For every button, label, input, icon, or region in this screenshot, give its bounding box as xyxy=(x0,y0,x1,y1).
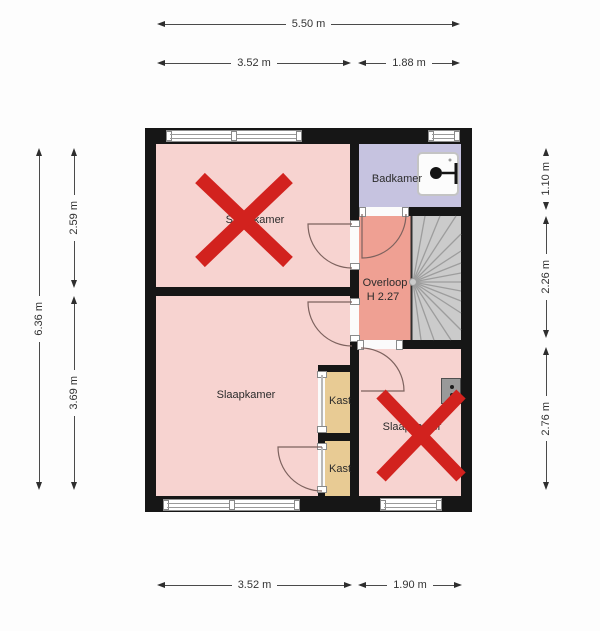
arrow-up-icon xyxy=(543,347,549,355)
dim-line xyxy=(366,585,387,586)
shower-fixtures xyxy=(430,159,456,185)
dim-label: 2.26 m xyxy=(540,254,552,300)
dim-top-total: 5.50 m xyxy=(157,18,460,30)
dim-left-upper: 2.59 m xyxy=(68,148,80,288)
dim-line xyxy=(366,63,386,64)
dim-line xyxy=(546,355,547,396)
arrow-up-icon xyxy=(71,296,77,304)
arrow-down-icon xyxy=(543,482,549,490)
dim-left-lower: 3.69 m xyxy=(68,296,80,490)
arrow-up-icon xyxy=(36,148,42,156)
dim-right-middle: 2.26 m xyxy=(540,216,552,338)
arrow-right-icon xyxy=(344,582,352,588)
plan-vector-overlay xyxy=(145,128,472,512)
arrow-right-icon xyxy=(452,21,460,27)
arrow-left-icon xyxy=(358,582,366,588)
dim-line xyxy=(432,63,452,64)
door-arc-closet-lower xyxy=(278,447,322,491)
door-arc-bedroom-bottom-right xyxy=(361,348,404,391)
arrow-down-icon xyxy=(36,482,42,490)
door-arc-bedroom-top-left xyxy=(308,224,352,268)
dim-line xyxy=(546,300,547,330)
stairs-treads xyxy=(413,216,461,340)
arrow-left-icon xyxy=(358,60,366,66)
dim-top-left: 3.52 m xyxy=(157,57,351,69)
dim-line xyxy=(74,304,75,370)
dim-right-lower: 2.76 m xyxy=(540,347,552,490)
dim-line xyxy=(165,24,286,25)
dim-line xyxy=(433,585,454,586)
dim-label: 1.90 m xyxy=(387,579,433,591)
dim-line xyxy=(39,156,40,296)
dim-line xyxy=(74,241,75,280)
arrow-left-icon xyxy=(157,60,165,66)
dim-label: 2.76 m xyxy=(540,396,552,442)
floor-plan: Slaapkamer Badkamer Overloop H 2.27 Slaa… xyxy=(145,128,472,512)
shower-head-dot xyxy=(449,159,452,162)
dim-line xyxy=(331,24,452,25)
cross-mark-bedroom-bottom-right xyxy=(381,394,461,477)
dim-line xyxy=(165,585,232,586)
arrow-up-icon xyxy=(543,148,549,156)
dim-line xyxy=(277,585,344,586)
arrow-right-icon xyxy=(454,582,462,588)
dim-label: 2.59 m xyxy=(68,195,80,241)
dim-label: 3.69 m xyxy=(68,370,80,416)
dim-line xyxy=(546,441,547,482)
dim-label: 1.88 m xyxy=(386,57,432,69)
floorplan-page: 5.50 m 3.52 m 1.88 m 3.52 m 1.90 m 6.36 … xyxy=(0,0,600,631)
dim-left-total: 6.36 m xyxy=(33,148,45,490)
shower-drain-icon xyxy=(430,167,442,179)
dim-label: 3.52 m xyxy=(231,57,277,69)
door-swings xyxy=(278,214,406,491)
cross-mark-bedroom-top-left xyxy=(200,178,288,262)
arrow-right-icon xyxy=(452,60,460,66)
arrow-down-icon xyxy=(71,280,77,288)
dim-line xyxy=(277,63,343,64)
arrow-left-icon xyxy=(157,21,165,27)
arrow-down-icon xyxy=(71,482,77,490)
door-arc-bathroom xyxy=(362,214,406,258)
arrow-down-icon xyxy=(543,202,549,210)
boiler-dot xyxy=(450,385,454,389)
door-arc-bedroom-bottom-left xyxy=(308,302,352,346)
dim-line xyxy=(546,224,547,254)
dim-label: 6.36 m xyxy=(33,296,45,342)
dim-label: 3.52 m xyxy=(232,579,278,591)
dim-bottom-right: 1.90 m xyxy=(358,579,462,591)
dim-bottom-left: 3.52 m xyxy=(157,579,352,591)
dim-line xyxy=(39,342,40,482)
dim-right-upper: 1.10 m xyxy=(540,148,552,208)
dim-line xyxy=(74,156,75,195)
dim-label: 5.50 m xyxy=(286,18,332,30)
stairs-hub xyxy=(410,279,417,286)
arrow-right-icon xyxy=(343,60,351,66)
arrow-up-icon xyxy=(543,216,549,224)
dim-line xyxy=(165,63,231,64)
dim-top-right: 1.88 m xyxy=(358,57,460,69)
arrow-left-icon xyxy=(157,582,165,588)
dim-line xyxy=(74,416,75,482)
dim-label: 1.10 m xyxy=(540,156,552,202)
arrow-up-icon xyxy=(71,148,77,156)
arrow-down-icon xyxy=(543,330,549,338)
